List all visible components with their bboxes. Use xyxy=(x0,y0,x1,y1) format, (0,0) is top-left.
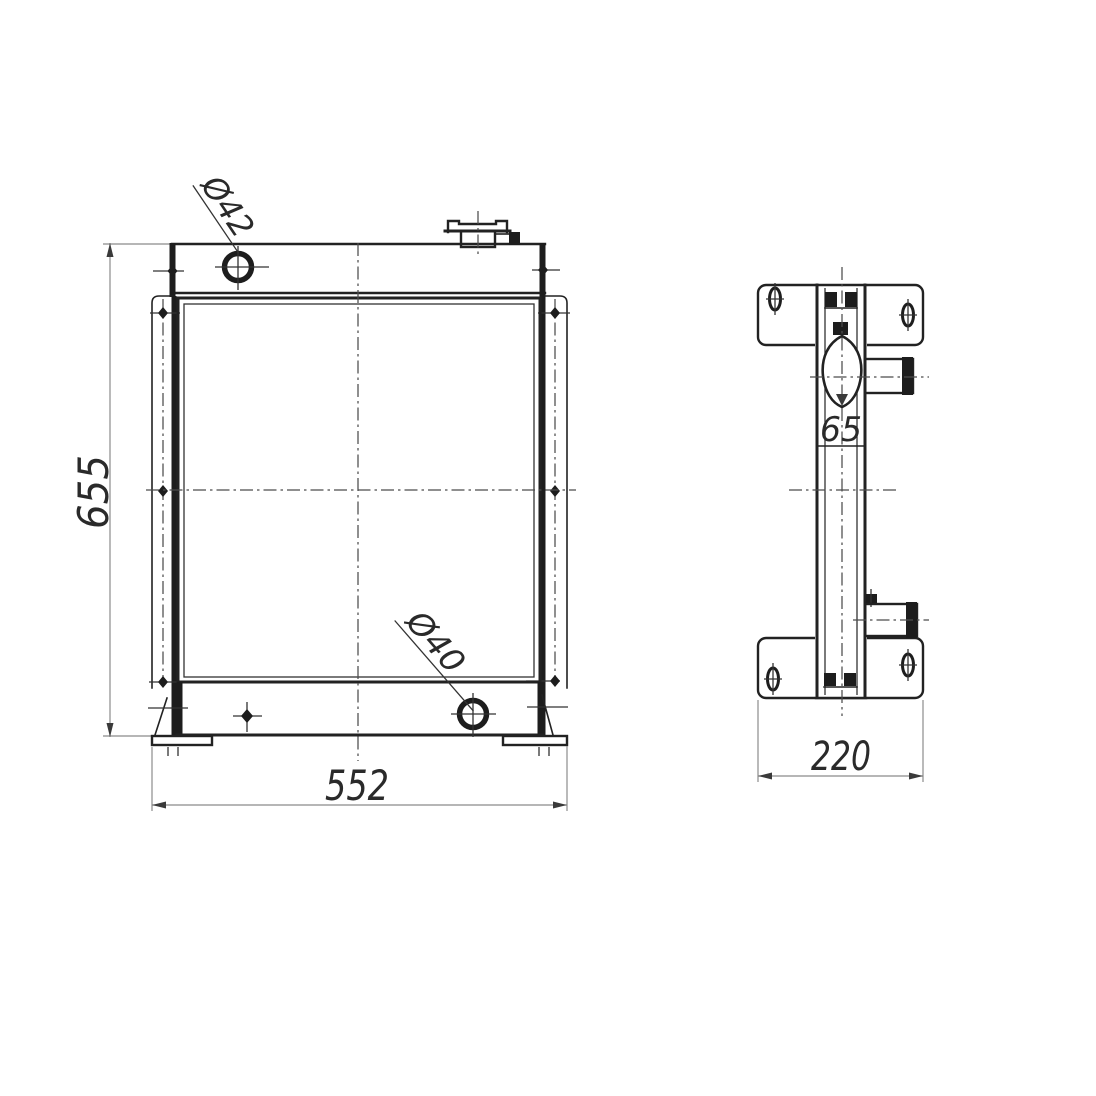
paper-background xyxy=(0,0,1096,1096)
radiator-technical-drawing: 655 xyxy=(0,0,1096,1096)
filler-cap-side xyxy=(833,322,848,335)
drawing-canvas: 655 xyxy=(0,0,1096,1096)
dim-655-label: 655 xyxy=(69,455,118,529)
dim-552-label: 552 xyxy=(325,761,389,810)
dim-65-label: 65 xyxy=(820,410,862,450)
dim-220-label: 220 xyxy=(811,734,871,780)
